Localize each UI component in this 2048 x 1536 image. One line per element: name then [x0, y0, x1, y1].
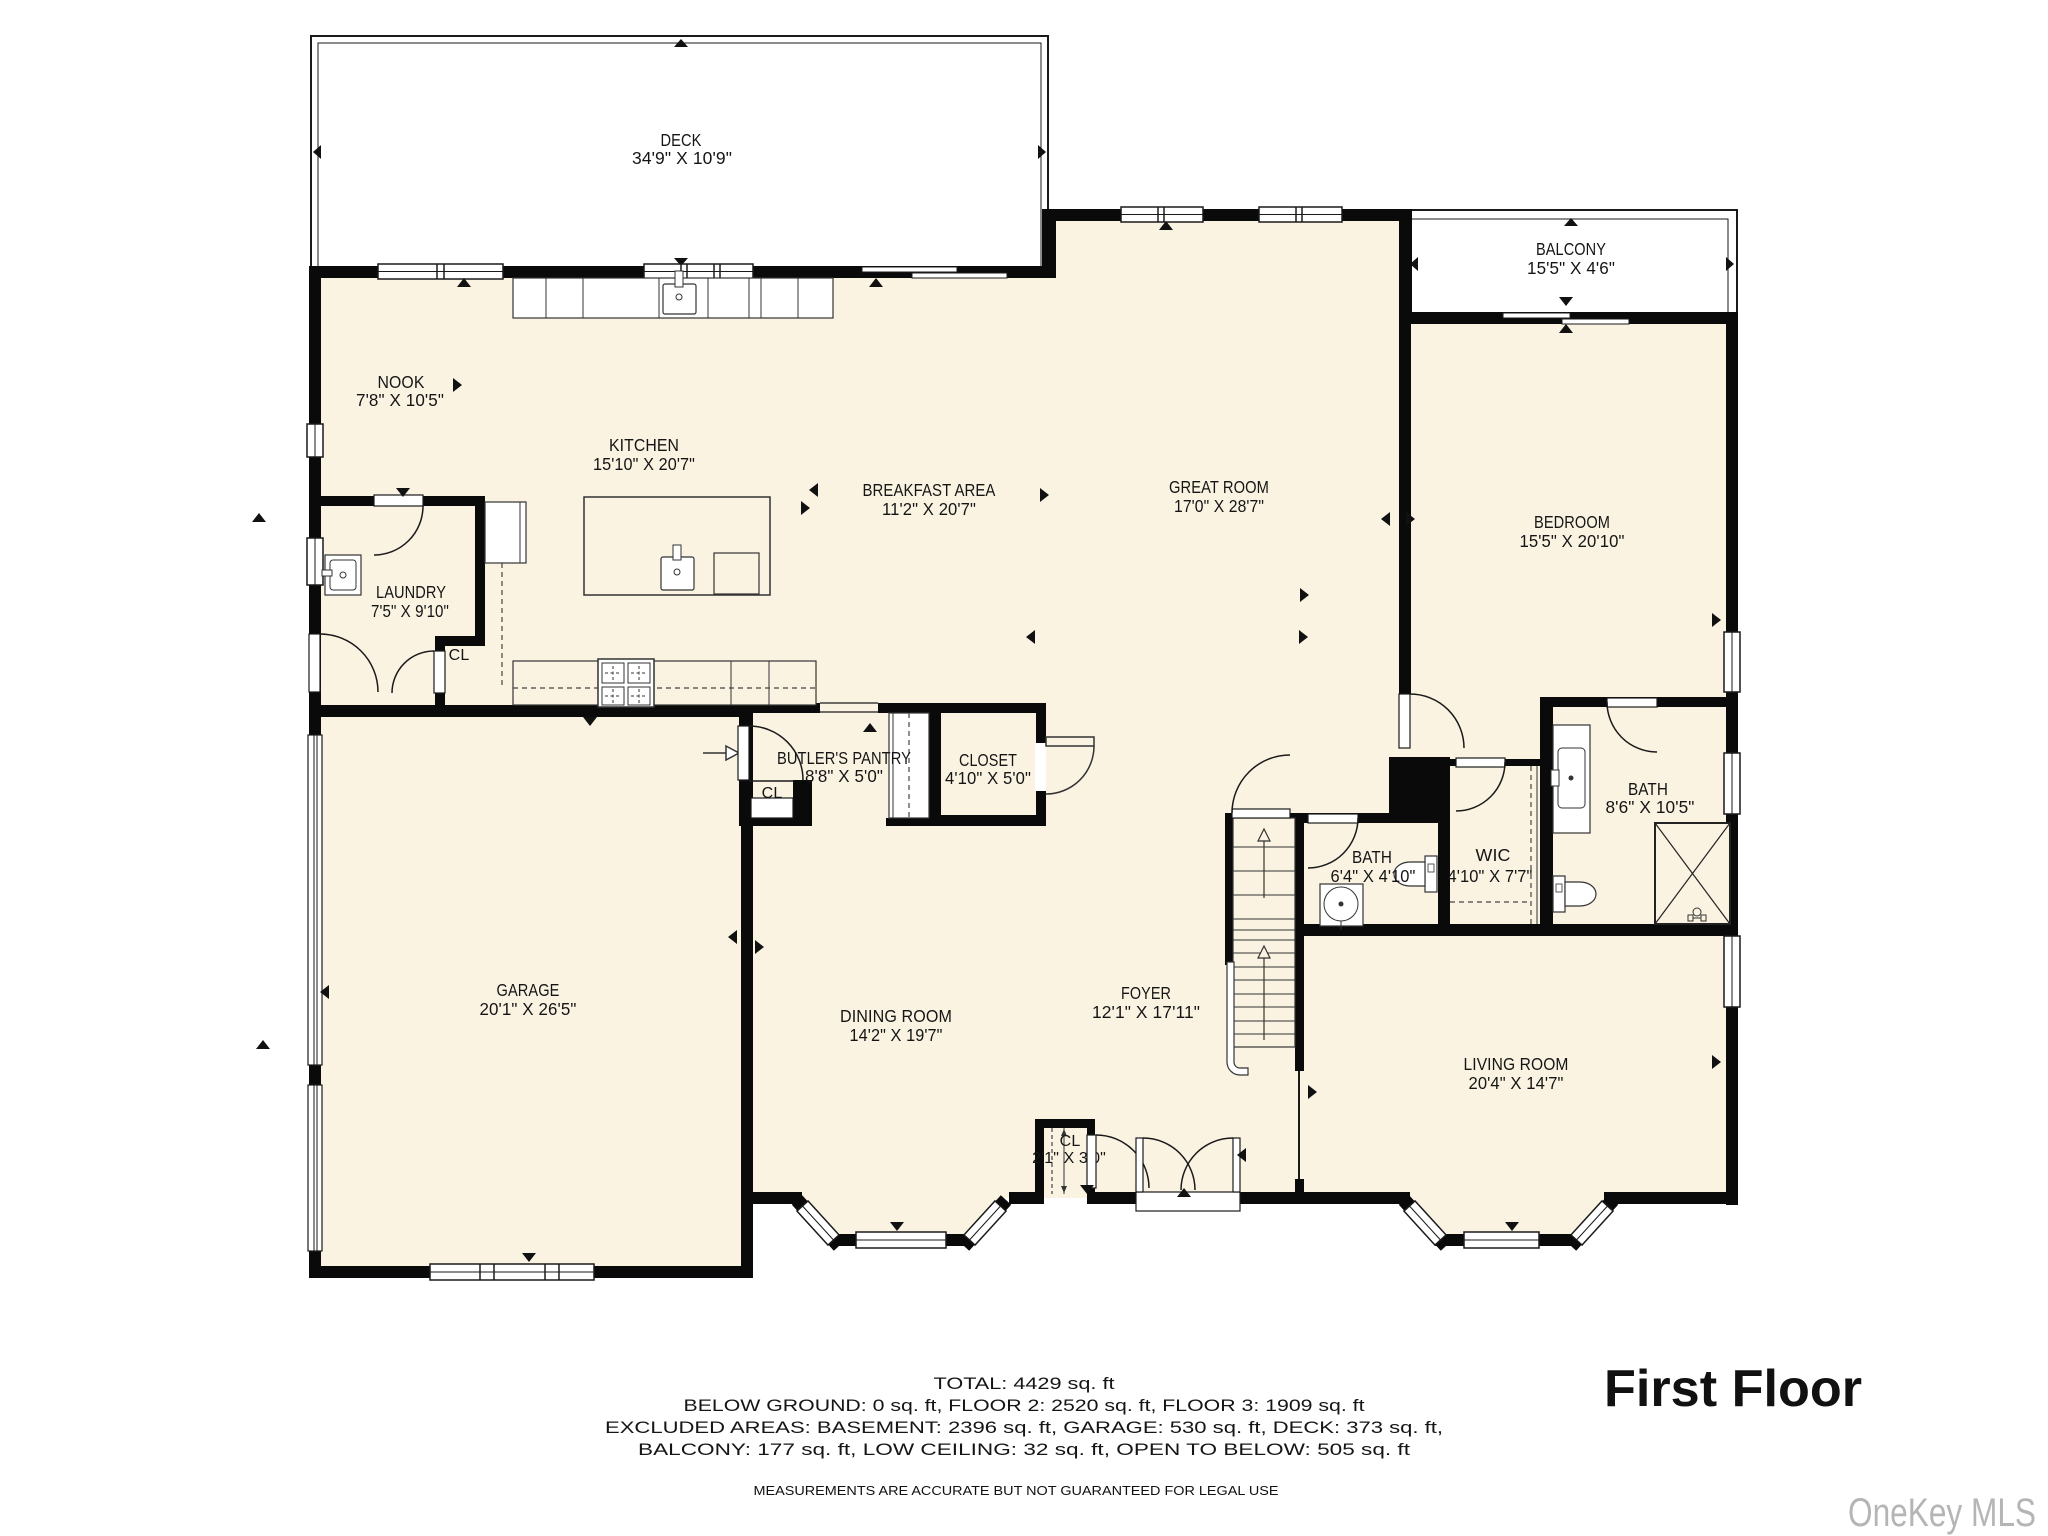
svg-text:15'5" X 20'10": 15'5" X 20'10" — [1520, 531, 1625, 551]
svg-text:15'10" X 20'7": 15'10" X 20'7" — [593, 454, 695, 474]
svg-text:LAUNDRY: LAUNDRY — [376, 582, 446, 602]
svg-text:DINING ROOM: DINING ROOM — [840, 1006, 952, 1026]
svg-text:11'2" X 20'7": 11'2" X 20'7" — [882, 499, 976, 519]
svg-text:BUTLER'S PANTRY: BUTLER'S PANTRY — [777, 748, 911, 768]
svg-text:8'8" X 5'0": 8'8" X 5'0" — [805, 766, 883, 786]
svg-text:First Floor: First Floor — [1604, 1360, 1862, 1418]
svg-text:BATH: BATH — [1352, 847, 1392, 867]
svg-text:TOTAL: 4429 sq. ft: TOTAL: 4429 sq. ft — [934, 1375, 1116, 1393]
svg-text:BALCONY: BALCONY — [1536, 239, 1606, 259]
svg-text:17'0" X 28'7": 17'0" X 28'7" — [1174, 496, 1264, 516]
svg-text:NOOK: NOOK — [378, 372, 425, 392]
svg-text:OneKey MLS: OneKey MLS — [1848, 1491, 2036, 1535]
svg-text:EXCLUDED AREAS: BASEMENT: 2396: EXCLUDED AREAS: BASEMENT: 2396 sq. ft, G… — [605, 1419, 1443, 1437]
svg-text:CL: CL — [762, 785, 783, 802]
svg-text:WIC: WIC — [1476, 845, 1511, 865]
svg-text:BATH: BATH — [1628, 779, 1668, 799]
svg-text:BREAKFAST AREA: BREAKFAST AREA — [863, 480, 996, 500]
svg-text:6'4" X 4'10": 6'4" X 4'10" — [1331, 866, 1416, 886]
svg-text:34'9" X 10'9": 34'9" X 10'9" — [632, 148, 732, 168]
svg-text:BALCONY: 177 sq. ft, LOW CEILI: BALCONY: 177 sq. ft, LOW CEILING: 32 sq.… — [638, 1441, 1411, 1459]
svg-text:8'6" X 10'5": 8'6" X 10'5" — [1606, 797, 1695, 817]
svg-text:CLOSET: CLOSET — [959, 750, 1017, 770]
svg-text:4'10" X 7'7": 4'10" X 7'7" — [1448, 866, 1533, 886]
svg-text:GREAT ROOM: GREAT ROOM — [1169, 477, 1269, 497]
svg-text:20'4" X 14'7": 20'4" X 14'7" — [1469, 1073, 1564, 1093]
svg-text:20'1" X 26'5": 20'1" X 26'5" — [480, 999, 577, 1019]
svg-text:CL: CL — [1060, 1133, 1081, 1150]
svg-text:12'1" X 17'11": 12'1" X 17'11" — [1092, 1002, 1200, 1022]
svg-text:KITCHEN: KITCHEN — [609, 435, 679, 455]
svg-text:7'5" X 9'10": 7'5" X 9'10" — [371, 601, 449, 621]
svg-text:7'8" X 10'5": 7'8" X 10'5" — [356, 390, 444, 410]
svg-text:4'10" X 5'0": 4'10" X 5'0" — [945, 768, 1031, 788]
svg-text:BEDROOM: BEDROOM — [1534, 512, 1610, 532]
svg-text:14'2" X 19'7": 14'2" X 19'7" — [850, 1025, 943, 1045]
svg-text:BELOW GROUND: 0 sq. ft, FLOOR: BELOW GROUND: 0 sq. ft, FLOOR 2: 2520 sq… — [684, 1397, 1366, 1415]
svg-text:LIVING ROOM: LIVING ROOM — [1464, 1054, 1569, 1074]
svg-text:CL: CL — [449, 647, 470, 664]
svg-text:DECK: DECK — [661, 130, 702, 150]
svg-text:MEASUREMENTS ARE ACCURATE BUT: MEASUREMENTS ARE ACCURATE BUT NOT GUARAN… — [754, 1483, 1279, 1498]
svg-text:GARAGE: GARAGE — [497, 980, 560, 1000]
svg-text:15'5" X 4'6": 15'5" X 4'6" — [1527, 258, 1615, 278]
svg-text:FOYER: FOYER — [1121, 983, 1171, 1003]
